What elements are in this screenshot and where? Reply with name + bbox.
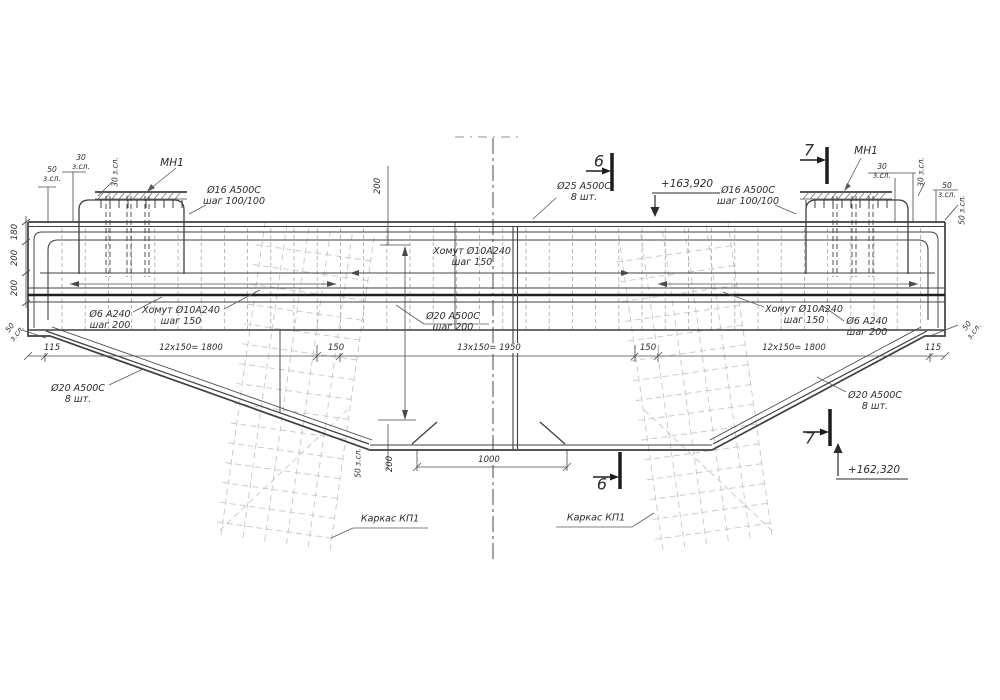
section-marks xyxy=(586,147,830,489)
dimensions xyxy=(22,166,958,471)
stirrups xyxy=(62,228,920,329)
drawing-canvas xyxy=(0,0,1000,700)
beam-outline xyxy=(28,222,945,450)
rebar-cages xyxy=(215,221,777,555)
elevation-marks xyxy=(651,193,909,479)
leaders xyxy=(109,158,861,538)
technical-drawing: МН1МН1Ø16 A500C шаг 100/100Ø16 A500C шаг… xyxy=(0,0,1000,700)
